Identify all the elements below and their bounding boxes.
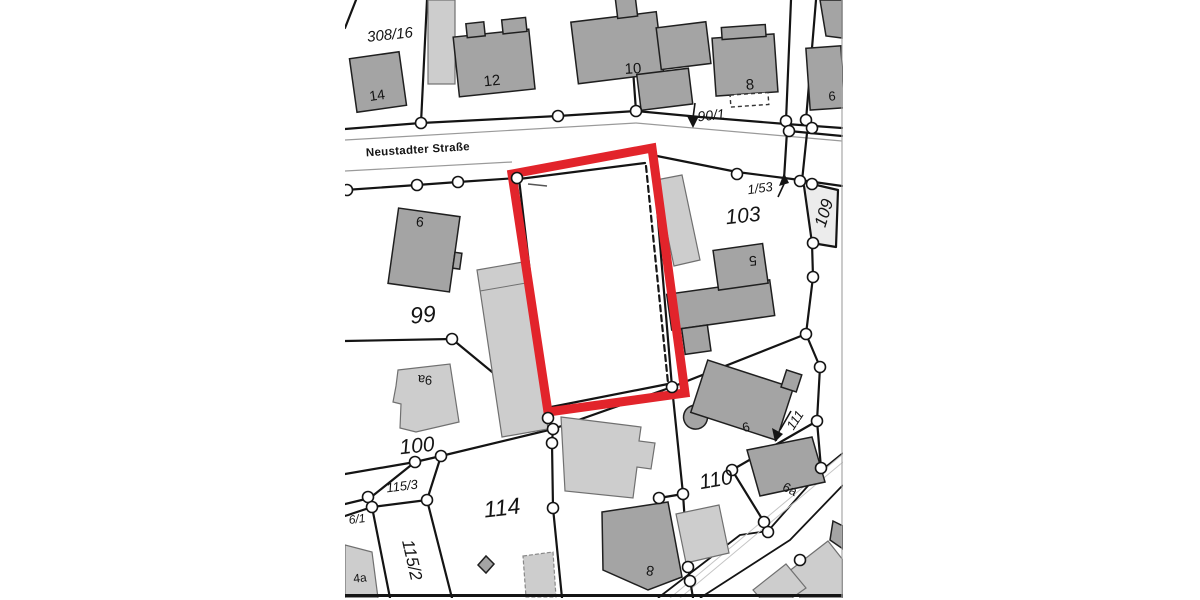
parcel-label-1-53: 1/53 (747, 180, 774, 196)
parcel-label-110: 110 (698, 467, 735, 493)
cadastral-map[interactable]: Neustadter Straße 308/16 90/1 1/53 109 1… (0, 0, 1200, 600)
house-number-10: 10 (624, 61, 641, 77)
parcel-label-90-1: 90/1 (697, 107, 726, 124)
house-number-6-top: 6 (828, 89, 836, 102)
house-number-9: 9 (415, 215, 424, 230)
building-14 (349, 52, 406, 112)
parcel-label-115-3: 115/3 (386, 478, 419, 495)
building-6-top (806, 46, 845, 110)
house-number-9a: 9a (417, 373, 432, 387)
house-number-14: 14 (368, 87, 385, 103)
parcel-label-114: 114 (482, 494, 521, 521)
house-number-12: 12 (483, 73, 501, 90)
house-number-8-top: 8 (745, 77, 754, 93)
shed-114 (523, 552, 556, 597)
outbuilding-110 (676, 505, 729, 563)
house-number-4a: 4a (353, 571, 368, 584)
parcel-label-6-1: 6/1 (348, 512, 366, 526)
parcel-label-99: 99 (409, 302, 437, 328)
cadastral-map-svg (0, 0, 1200, 600)
parcel-label-103: 103 (724, 204, 761, 229)
annex-building-12 (428, 0, 455, 84)
house-number-5: 5 (749, 254, 758, 269)
parcel-label-100: 100 (398, 434, 435, 459)
